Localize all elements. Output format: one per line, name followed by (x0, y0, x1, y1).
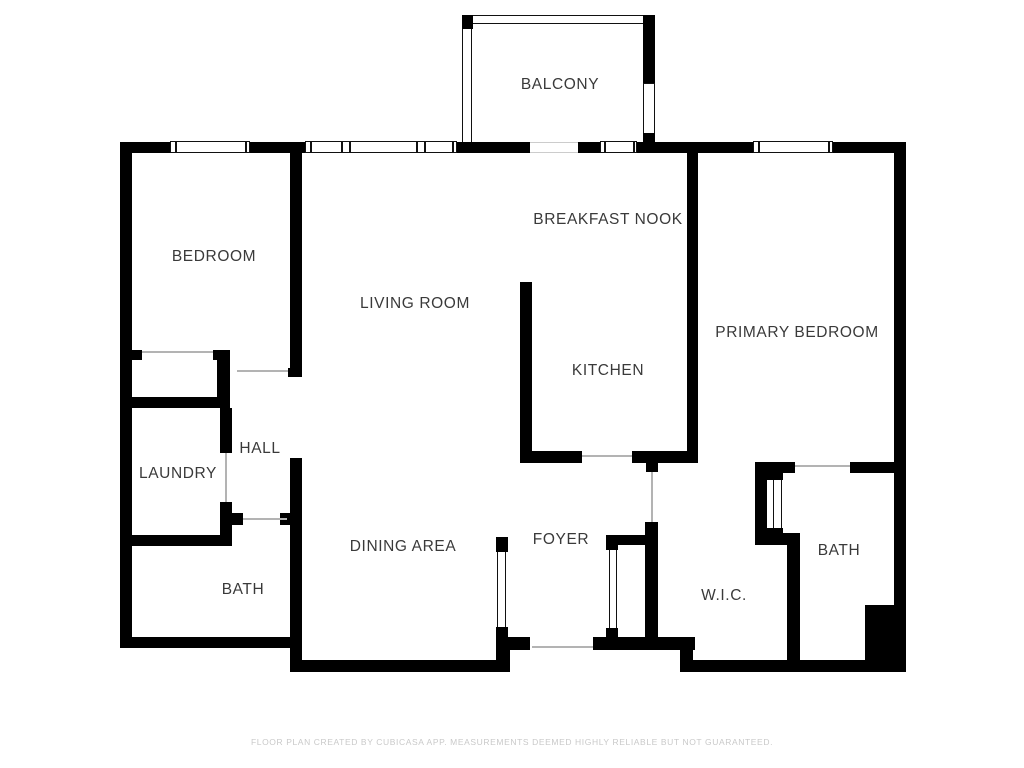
bath-left-bottom-wall (120, 637, 302, 648)
primary-window-mullion (828, 142, 830, 152)
bedroom-window-mullion (245, 142, 247, 152)
bedroom-door-jamb-wall (288, 368, 302, 377)
foyer-bottom-wall (498, 637, 695, 650)
balcony-top-rail (462, 15, 655, 24)
pipe-chase-wall (865, 605, 906, 670)
living-window-mullion (310, 142, 312, 152)
kitchen-south-west-wall (520, 451, 582, 463)
living-window-mullion (341, 142, 343, 152)
living-window-mullion (349, 142, 351, 152)
wic-door-line (651, 472, 653, 522)
bath2-door-line (795, 465, 850, 467)
balcony-left-rail (462, 15, 472, 152)
living-window-mullion (416, 142, 418, 152)
bedroom-closet-door-line (142, 351, 213, 353)
exterior-left-wall (120, 142, 132, 648)
foyer-closet-door (609, 548, 617, 630)
balcony-right-tab-wall (643, 133, 655, 153)
dining-slider-door (497, 551, 506, 629)
dining-west-wall (290, 458, 302, 672)
kitchen-peninsula-wall (520, 282, 532, 463)
primary-window (753, 141, 833, 153)
dining-slider-cap-bottom-wall (496, 627, 508, 672)
bath2-closet-stub-top-wall (765, 468, 783, 480)
room-label-bath: BATH (222, 581, 265, 599)
room-label-breakfast-nook: BREAKFAST NOOK (533, 211, 682, 229)
exterior-right-wall (894, 142, 906, 672)
kitchen-window-mullion (633, 142, 635, 152)
kitchen-foyer-door-line (582, 455, 632, 457)
bath2-closet-door (773, 478, 782, 530)
laundry-east-upper-wall (220, 408, 232, 453)
balcony-right-rail (643, 83, 655, 135)
hall-south-stub-left-wall (230, 513, 243, 525)
foyer-closet-stub-top-wall (606, 535, 618, 550)
dining-slider-cap-top-wall (496, 537, 508, 552)
exterior-bottom-center-wall (290, 660, 510, 672)
wic-west-stub-wall (646, 462, 658, 472)
room-label-dining-area: DINING AREA (350, 538, 457, 556)
entry-door-opening (530, 637, 593, 650)
kitchen-window-mullion (604, 142, 606, 152)
room-label-kitchen: KITCHEN (572, 362, 644, 380)
room-label-living-room: LIVING ROOM (360, 295, 470, 313)
room-label-laundry: LAUNDRY (139, 465, 217, 483)
kitchen-south-east-wall (632, 451, 695, 463)
hall-bath-door-line (243, 518, 287, 520)
room-label-balcony: BALCONY (521, 76, 599, 94)
floor-plan: FLOOR PLAN CREATED BY CUBICASA APP. MEAS… (0, 0, 1024, 768)
balcony-corner-cap-wall (462, 15, 473, 29)
foyer-closet-stub-bottom-wall (606, 628, 618, 640)
primary-window-mullion (758, 142, 760, 152)
living-window-mullion (452, 142, 454, 152)
living-window (305, 141, 457, 153)
balcony-right-wall-wall (643, 15, 655, 83)
room-label-bath: BATH (818, 542, 861, 560)
footer-disclaimer: FLOOR PLAN CREATED BY CUBICASA APP. MEAS… (0, 737, 1024, 747)
laundry-south-wall (120, 535, 232, 546)
laundry-north-wall (120, 397, 228, 408)
kitchen-window (600, 141, 637, 153)
bedroom-window-mullion (175, 142, 177, 152)
room-label-w-i-c-: W.I.C. (701, 587, 747, 605)
entry-door-line (532, 646, 593, 648)
room-label-bedroom: BEDROOM (172, 248, 256, 266)
wic-bath-divider-v-wall (787, 533, 800, 663)
living-window-mullion (424, 142, 426, 152)
bedroom-south-stub-wall (120, 350, 142, 360)
room-label-primary-bedroom: PRIMARY BEDROOM (715, 324, 878, 342)
bedroom-entry-door-line (237, 370, 288, 372)
room-label-hall: HALL (239, 440, 280, 458)
bedroom-window (170, 141, 250, 153)
primary-west-wall (687, 153, 698, 463)
room-label-foyer: FOYER (533, 531, 589, 549)
bedroom-east-wall (290, 142, 302, 377)
laundry-door-line (225, 453, 227, 502)
balcony-door-opening (530, 142, 578, 153)
bath2-north-east-wall (850, 462, 906, 473)
